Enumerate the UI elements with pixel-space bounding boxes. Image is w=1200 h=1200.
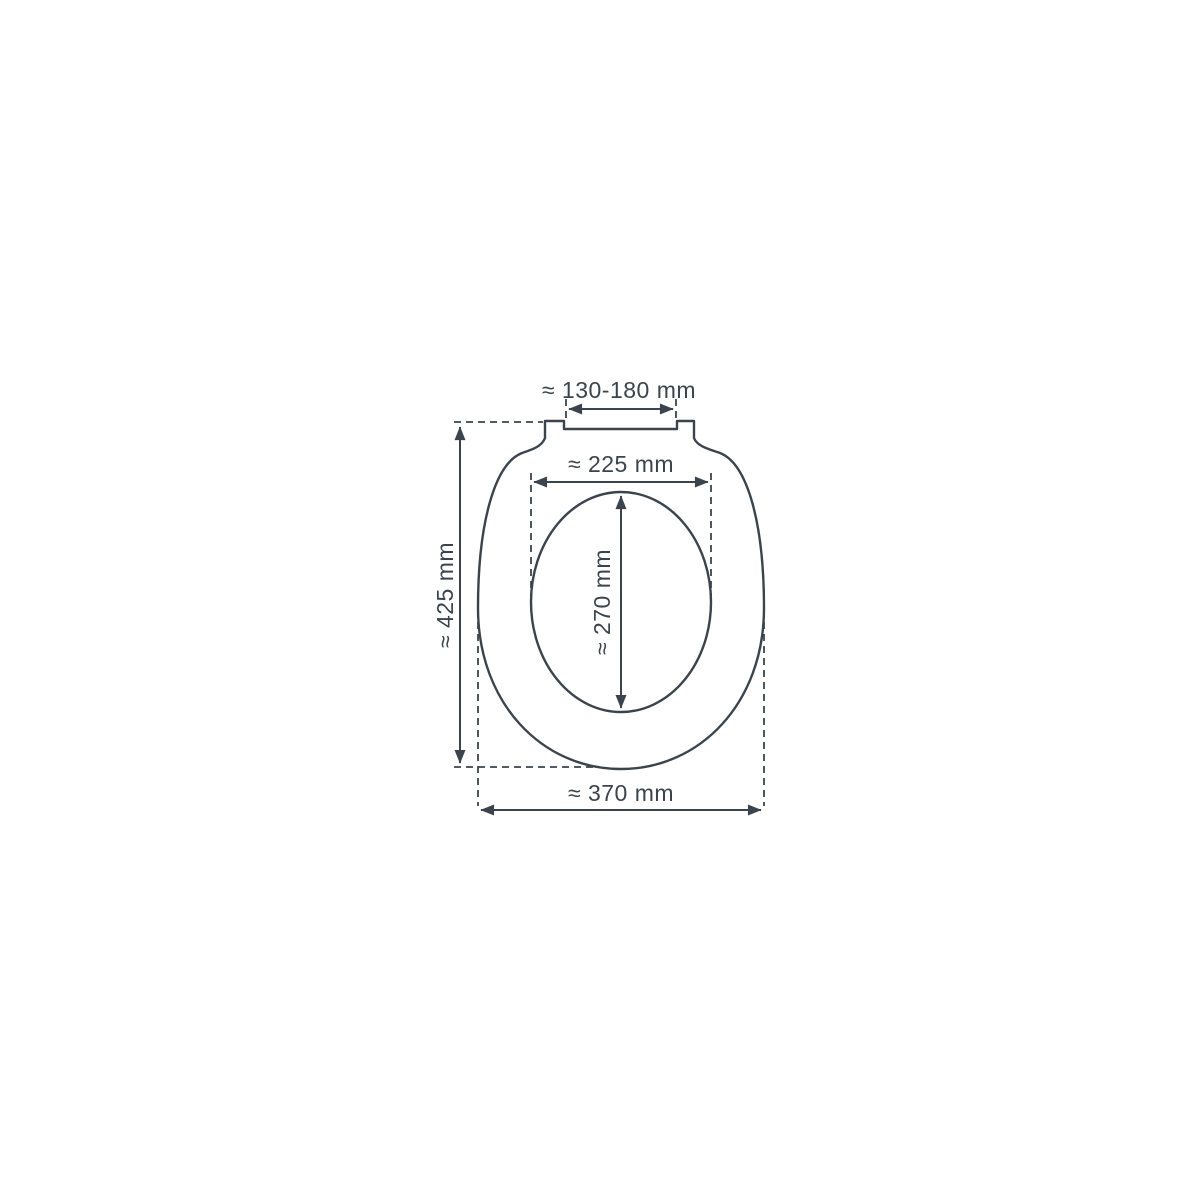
hinge-spacing-label: ≈ 130-180 mm bbox=[542, 377, 696, 403]
inner-length-label: ≈ 270 mm bbox=[589, 549, 615, 655]
overall-width-label: ≈ 370 mm bbox=[568, 780, 674, 806]
toilet-seat-dimension-diagram: ≈ 130-180 mm ≈ 225 mm ≈ 270 mm ≈ 425 mm bbox=[0, 0, 1200, 1200]
dimension-hinge-spacing: ≈ 130-180 mm bbox=[542, 377, 696, 421]
dimension-inner-length: ≈ 270 mm bbox=[589, 496, 621, 708]
diagram-canvas: ≈ 130-180 mm ≈ 225 mm ≈ 270 mm ≈ 425 mm bbox=[0, 0, 1200, 1200]
overall-length-label: ≈ 425 mm bbox=[432, 542, 458, 648]
inner-width-label: ≈ 225 mm bbox=[568, 451, 674, 477]
